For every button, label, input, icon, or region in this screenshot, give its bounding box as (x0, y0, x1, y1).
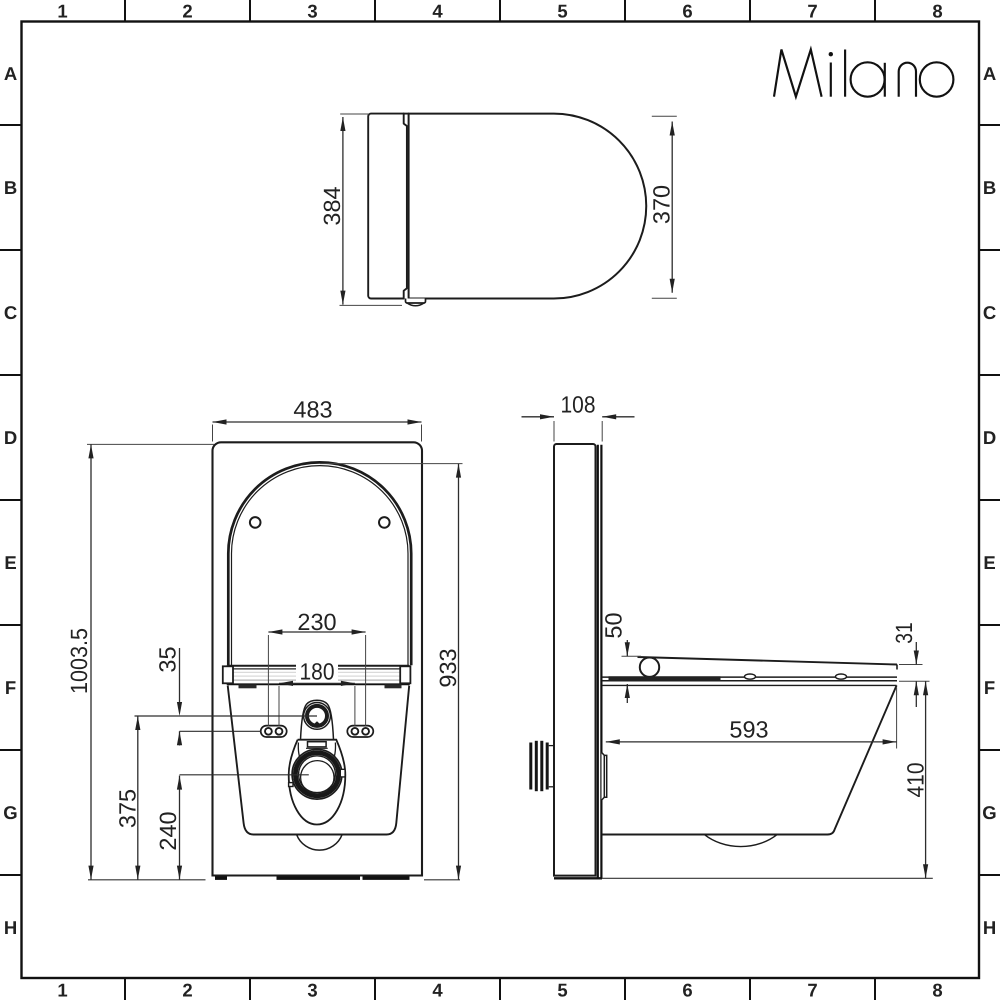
svg-text:7: 7 (807, 1, 817, 22)
svg-text:D: D (4, 427, 17, 448)
svg-text:H: H (983, 917, 996, 938)
svg-text:A: A (4, 63, 17, 84)
svg-text:933: 933 (435, 648, 461, 687)
svg-text:B: B (983, 177, 996, 198)
svg-text:4: 4 (432, 980, 443, 1000)
svg-text:G: G (3, 802, 17, 823)
svg-text:240: 240 (155, 811, 181, 850)
svg-text:5: 5 (557, 980, 567, 1000)
svg-text:50: 50 (600, 612, 626, 638)
svg-text:A: A (983, 63, 996, 84)
svg-text:D: D (983, 427, 996, 448)
svg-text:375: 375 (114, 789, 140, 828)
svg-text:31: 31 (891, 622, 917, 644)
svg-text:1: 1 (57, 1, 67, 22)
svg-text:483: 483 (293, 396, 332, 422)
svg-text:6: 6 (682, 980, 692, 1000)
svg-text:8: 8 (932, 980, 942, 1000)
svg-text:1: 1 (57, 980, 67, 1000)
svg-text:2: 2 (182, 1, 192, 22)
svg-text:593: 593 (729, 717, 768, 743)
svg-text:384: 384 (319, 186, 345, 225)
svg-text:2: 2 (182, 980, 192, 1000)
svg-text:8: 8 (932, 1, 942, 22)
svg-text:3: 3 (307, 1, 317, 22)
svg-text:108: 108 (561, 392, 596, 418)
svg-text:E: E (4, 552, 16, 573)
svg-text:G: G (982, 802, 996, 823)
svg-text:H: H (4, 917, 17, 938)
svg-text:370: 370 (648, 185, 674, 224)
svg-text:F: F (5, 677, 16, 698)
svg-text:E: E (983, 552, 995, 573)
svg-text:B: B (4, 177, 17, 198)
svg-text:180: 180 (300, 659, 335, 685)
svg-text:6: 6 (682, 1, 692, 22)
svg-text:410: 410 (903, 763, 929, 798)
svg-text:7: 7 (807, 980, 817, 1000)
svg-text:3: 3 (307, 980, 317, 1000)
svg-text:C: C (4, 302, 17, 323)
svg-text:230: 230 (297, 609, 336, 635)
svg-text:F: F (984, 677, 995, 698)
svg-text:1003.5: 1003.5 (66, 628, 92, 694)
svg-text:5: 5 (557, 1, 567, 22)
svg-text:4: 4 (432, 1, 443, 22)
svg-text:35: 35 (155, 646, 181, 672)
svg-text:C: C (983, 302, 996, 323)
